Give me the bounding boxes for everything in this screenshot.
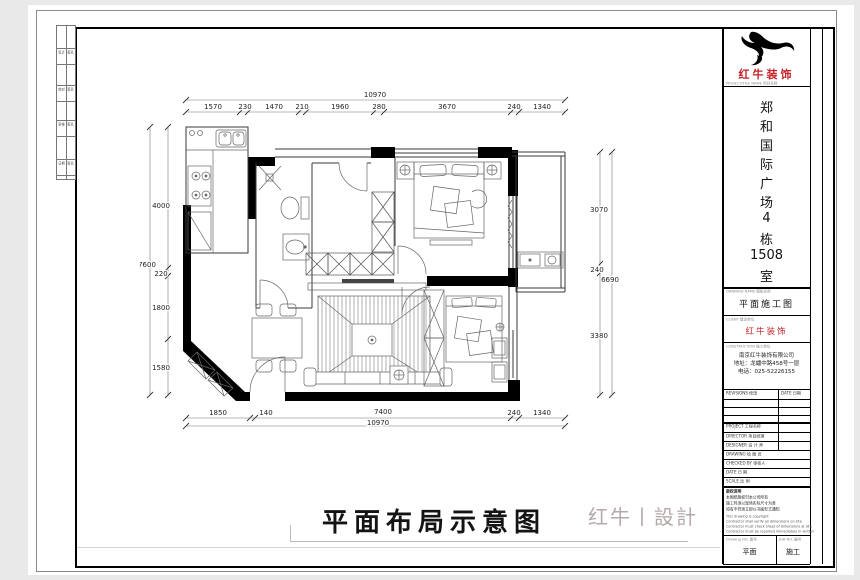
dim: 220 — [154, 270, 167, 278]
project-name-char: 1508 — [723, 248, 810, 263]
dim: 240 — [507, 409, 520, 417]
dim-right-overall: 6690 — [601, 276, 619, 284]
redbull-logo-icon — [737, 31, 797, 67]
signature-row: 校对 签名 — [57, 85, 75, 102]
bathroom — [259, 166, 309, 260]
notes-line-en: Contractor must check sheet of dimension… — [726, 524, 812, 528]
drawing-sheet: 设计 签名 校对 签名 审核 签名 日期 签名 红牛装饰 PROJECT/FIL… — [0, 0, 860, 580]
signature-cell: 签名 — [67, 88, 74, 91]
dim: 1850 — [209, 409, 227, 417]
project-name-char: 场 — [723, 192, 810, 211]
chair — [256, 304, 272, 316]
company-name: 南京红牛装饰有限公司 — [723, 352, 810, 360]
notes-line: 施工时须以现场实际尺寸为准 — [726, 501, 776, 506]
row-designer: DESIGNER 设 计 师 — [726, 443, 763, 448]
signature-cell: 签名 — [67, 162, 74, 165]
project-name-char: 和 — [723, 116, 810, 135]
signature-row: 日期 签名 — [57, 159, 75, 176]
signature-row: 设计 签名 — [57, 48, 75, 65]
kitchen — [186, 130, 248, 253]
drawing-title: 平面布局示意图 — [322, 502, 546, 539]
dim: 240 — [590, 266, 603, 274]
job-label: JOB NO. 编号 — [779, 537, 801, 542]
brand-name: 红牛装饰 — [723, 66, 810, 82]
divider — [723, 389, 810, 390]
dim: 1580 — [152, 364, 170, 372]
notes-line: 如有不符须立即以书面形式通知 — [726, 507, 780, 512]
dim: 140 — [259, 409, 272, 417]
bed — [414, 162, 484, 238]
project-name-char: 广 — [723, 173, 810, 192]
bed-bench — [430, 240, 472, 245]
dim: 3670 — [438, 103, 456, 111]
project-name-char: 国 — [723, 135, 810, 154]
notes-line-en: This drawing is copyright — [726, 514, 769, 518]
divider — [723, 342, 810, 343]
drawing-name-label: DRAWING NAME 图纸名称 — [726, 289, 771, 294]
dim: 280 — [372, 103, 385, 111]
dim: 1470 — [265, 103, 283, 111]
signature-strip: 设计 签名 校对 签名 审核 签名 日期 签名 — [56, 25, 76, 180]
title-block: 红牛装饰 PROJECT/FILE NAME 项目名称 郑 和 国 际 广 场 … — [723, 29, 810, 564]
row-scale: SCALE 比 例 — [726, 479, 750, 484]
divider — [723, 459, 810, 460]
project-name-char: 际 — [723, 154, 810, 173]
row-checked: CHECKED BY 审核人 — [726, 461, 765, 466]
tv-cabinet — [308, 283, 426, 290]
dim: 1960 — [331, 103, 349, 111]
notes-line-en: Contractor shall verify all dimensions o… — [726, 519, 802, 523]
tv — [342, 279, 394, 283]
project-name-char: 栋 — [723, 229, 810, 248]
divider — [723, 450, 810, 451]
divider — [723, 468, 810, 469]
drawing-no-value: 平面 — [723, 547, 776, 557]
dining-table — [252, 318, 302, 358]
brand-watermark: 红牛丨設計 — [588, 501, 698, 530]
revisions-label: REVISIONS 修改 — [726, 391, 757, 396]
dim: 3070 — [590, 206, 608, 214]
signature-cell: 校对 — [58, 88, 65, 91]
toilet-bowl — [281, 197, 299, 219]
company-phone: 电话：025-52226155 — [723, 368, 810, 376]
company-label: CONSTRUCTION 施工单位 — [726, 344, 771, 349]
signature-cell: 签名 — [67, 123, 74, 126]
divider — [723, 486, 810, 488]
dim: 1570 — [204, 103, 222, 111]
signature-cell: 签名 — [67, 51, 74, 54]
bedroom-2 — [424, 290, 507, 386]
dim: 1340 — [533, 409, 551, 417]
chair — [280, 360, 296, 372]
living-room — [304, 279, 452, 386]
divider — [723, 441, 810, 442]
dim: 7400 — [374, 408, 392, 416]
row-director: DIRECTOR 项目经理 — [726, 434, 764, 439]
row-drawing: DRAWING 绘 图 员 — [726, 452, 762, 457]
dim-left-overall: 7600 — [140, 261, 156, 269]
date-col-label: DATE 日期 — [781, 391, 801, 396]
signature-cell: 审核 — [58, 123, 65, 126]
dim: 240 — [507, 103, 520, 111]
dim-bottom-overall: 10970 — [367, 419, 389, 427]
signature-cell: 设计 — [58, 51, 65, 54]
project-name-char: 郑 — [723, 97, 810, 116]
divider — [723, 432, 810, 433]
row-project: PROJECT 工程名称 — [726, 424, 761, 429]
row-date: DATE 日 期 — [726, 470, 747, 475]
title-underline-corner — [290, 525, 291, 542]
balcony — [518, 252, 563, 268]
project-name-char: 4 — [723, 211, 810, 226]
dim: 210 — [295, 103, 308, 111]
divider — [723, 477, 810, 478]
chair — [256, 360, 272, 372]
dim: 230 — [238, 103, 251, 111]
notes-line-en: Contractor must be reported immediately … — [726, 529, 814, 533]
dim: 4000 — [152, 202, 170, 210]
titleblock-inner-divider — [810, 27, 811, 564]
floor-plan: 10970 1570 230 1470 210 1960 280 3670 24… — [140, 88, 630, 438]
notes-line: 本图纸版权归本公司所有 — [726, 495, 768, 500]
divider — [723, 535, 810, 536]
nightstand — [484, 162, 501, 179]
bedroom-1 — [397, 162, 512, 248]
signature-cell: 日期 — [58, 162, 65, 165]
drawing-name: 平面施工图 — [723, 297, 810, 310]
divider — [723, 315, 810, 316]
divider — [723, 399, 810, 400]
nightstand — [397, 162, 414, 179]
divider — [723, 86, 810, 87]
title-underline — [290, 541, 688, 542]
divider — [723, 564, 810, 565]
dim: 1800 — [152, 304, 170, 312]
client-label: CLIENT 建设单位 — [726, 317, 754, 322]
dim-top-overall: 10970 — [364, 91, 386, 99]
divider — [723, 415, 810, 416]
signature-row: 审核 签名 — [57, 120, 75, 137]
storage-cabinets — [306, 192, 394, 275]
notes-title: 版权说明 — [726, 489, 741, 494]
company-address: 地址：龙蟠中路458号一层 — [723, 360, 810, 368]
frame-inner-line — [77, 547, 720, 548]
drawing-no-label: Drawing NO. 图号 — [726, 537, 757, 542]
divider — [723, 407, 810, 408]
titleblock-edge-divider — [822, 27, 823, 564]
dim: 3380 — [590, 332, 608, 340]
project-name-char: 室 — [723, 266, 810, 285]
toilet-tank — [301, 197, 309, 219]
client-name: 红牛装饰 — [723, 325, 810, 337]
chair — [472, 190, 487, 208]
job-value: 施工 — [776, 547, 810, 557]
dim: 1340 — [533, 103, 551, 111]
revisions-col-divider — [778, 389, 779, 422]
